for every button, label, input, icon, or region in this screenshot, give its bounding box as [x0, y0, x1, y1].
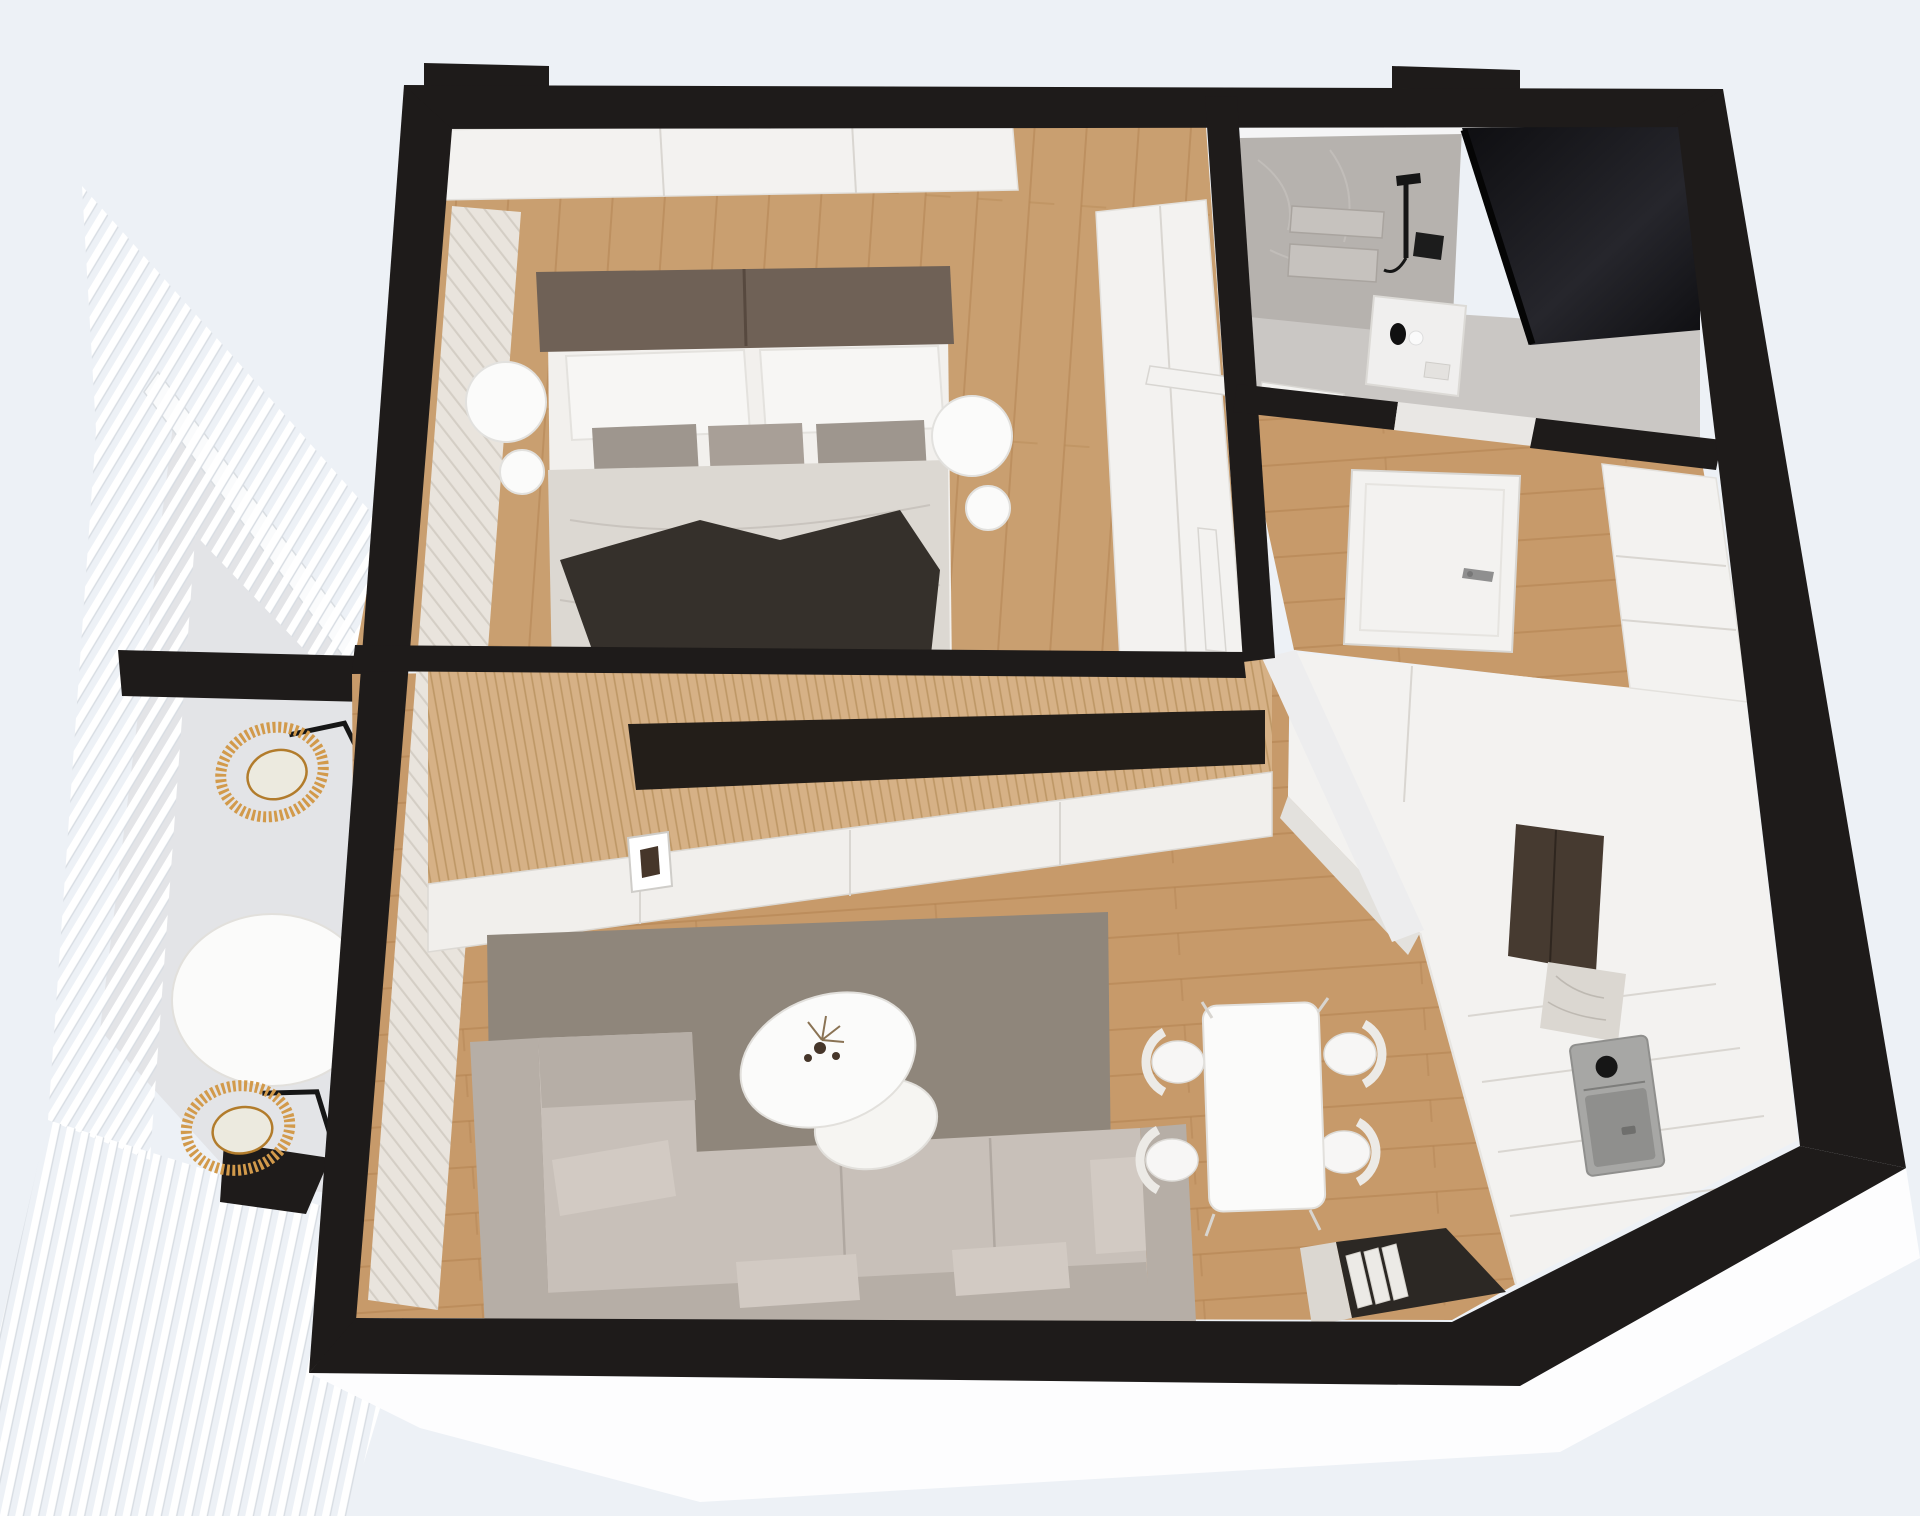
shower-niche-shelf-2 [1288, 244, 1378, 282]
balcony-wall-top [118, 650, 368, 702]
toiletry-dark [1390, 323, 1406, 345]
floor-plan-render [0, 0, 1920, 1516]
sofa-chaise-back [538, 1032, 696, 1108]
floor-plan-canvas [0, 0, 1920, 1516]
dining-table [1202, 1002, 1325, 1212]
wardrobe-top-run [430, 120, 1018, 200]
shower-niche-shelf-1 [1290, 206, 1384, 238]
wall-top [404, 85, 1723, 129]
marble-backsplash [1540, 962, 1626, 1042]
vanity [1366, 296, 1466, 396]
art-print [628, 832, 672, 892]
open-door [1344, 470, 1520, 652]
sofa-lumbar-2 [952, 1242, 1070, 1296]
wall-pillar-top-left [424, 63, 549, 89]
toiletry-white [1409, 331, 1423, 345]
sofa-lumbar-1 [736, 1254, 860, 1308]
double-bed [536, 266, 954, 690]
